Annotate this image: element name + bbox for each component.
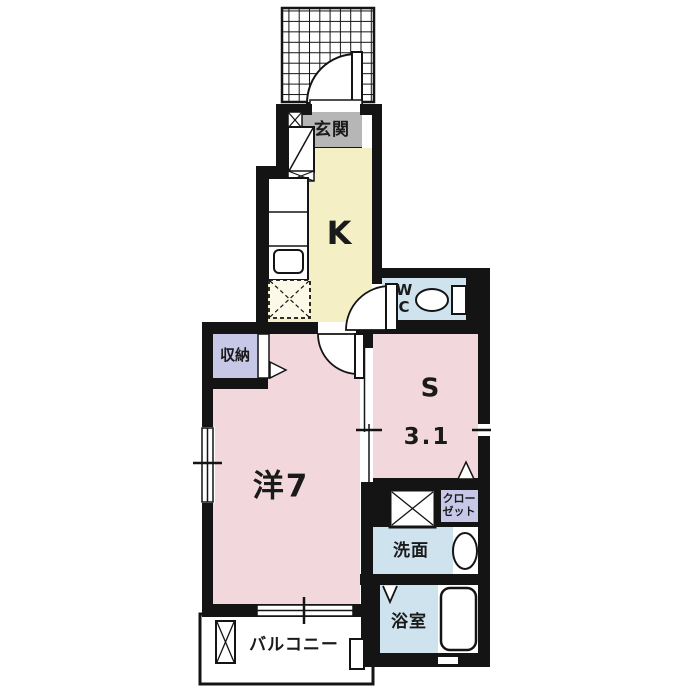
wall-bottom-outer (360, 653, 490, 667)
floor-plan-drawing (0, 0, 700, 700)
toilet-tank-icon (452, 286, 466, 314)
wall-bathroom-left (373, 585, 380, 653)
room-label-kitchen: K (327, 217, 352, 251)
entry-door-leaf (352, 52, 362, 104)
washbasin-icon (453, 533, 477, 569)
wall-laundry-left (373, 490, 390, 527)
room-label-washroom: 洗面 (393, 543, 429, 561)
room-label-entrance: 玄関 (314, 122, 350, 140)
room-size-service-room: 3.1 (404, 425, 451, 449)
kitchen-sink-icon (274, 250, 303, 273)
room-label-storage: 収納 (220, 348, 250, 364)
room-label-western-room: 洋7 (253, 471, 310, 504)
wall-main-top (202, 322, 318, 334)
bathtub-icon (441, 588, 476, 650)
room-label-service-room: S (421, 375, 440, 402)
wall-closet-bottom (441, 522, 478, 527)
room-door-leaf (355, 334, 364, 378)
floor-plan: 玄関 K W C 収納 S 3.1 洋7 クロー ゼット 洗面 浴室 バルコニー… (0, 0, 700, 700)
room-label-bathroom: 浴室 (391, 614, 427, 632)
wall-kitchen-left (256, 166, 268, 332)
room-label-toilet: W C (396, 282, 413, 317)
refrigerator-space-icon (269, 280, 310, 318)
entrance-porch (282, 8, 374, 113)
toilet-bowl-icon (416, 289, 448, 311)
wall-washroom-bottom (360, 574, 490, 585)
storage-door-leaf (258, 334, 269, 378)
wall-service-room-bottom (373, 478, 490, 490)
wall-kitchen-right (372, 104, 382, 284)
room-label-closet: クロー ゼット (443, 492, 476, 518)
entry-door-sill (310, 100, 362, 113)
room-label-balcony: バルコニー (249, 637, 339, 655)
opening-bath-vent (438, 657, 458, 664)
balcony-step-icon (350, 639, 364, 669)
wall-storage-bottom (202, 378, 268, 389)
wall-right-outer (478, 320, 490, 667)
service-room-floor (373, 334, 478, 478)
